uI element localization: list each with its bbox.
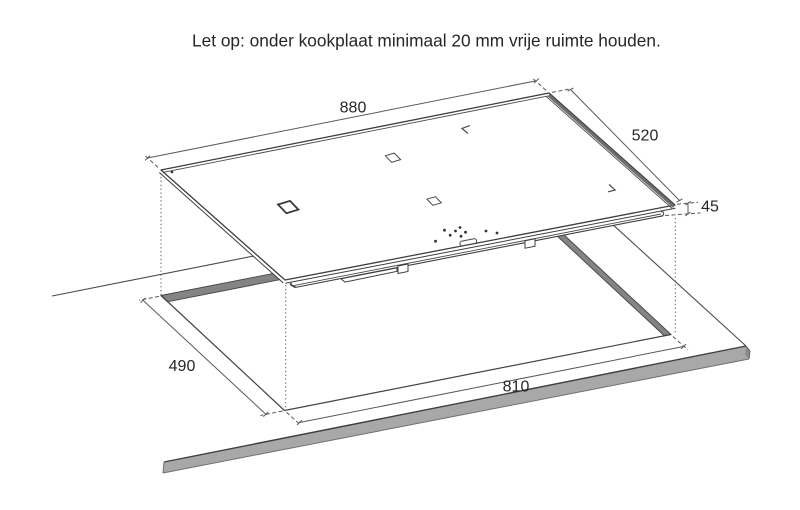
svg-text:490: 490 [169, 358, 196, 375]
svg-text:45: 45 [701, 199, 719, 216]
svg-text:880: 880 [340, 100, 367, 117]
svg-text:Let op: onder kookplaat minima: Let op: onder kookplaat minimaal 20 mm v… [192, 31, 661, 51]
svg-text:520: 520 [632, 128, 659, 145]
svg-text:810: 810 [503, 379, 530, 396]
